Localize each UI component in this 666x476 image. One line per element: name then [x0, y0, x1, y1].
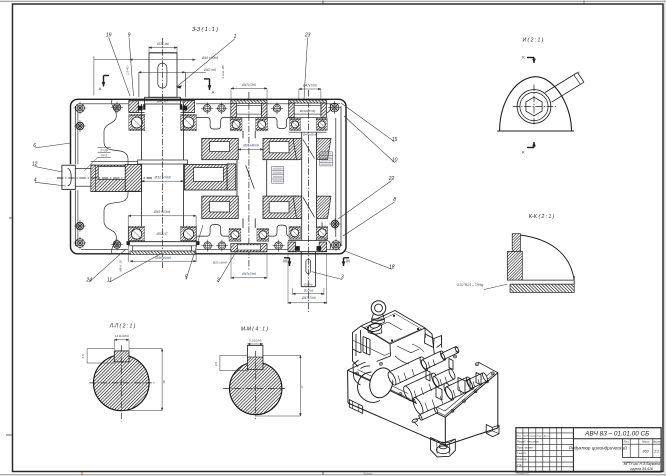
svg-text:И ( 2 : 1 ): И ( 2 : 1 ) — [523, 38, 544, 44]
svg-text:5: 5 — [185, 275, 188, 281]
svg-text:17: 17 — [300, 385, 304, 389]
svg-text:Ø47к7/п6: Ø47к7/п6 — [302, 83, 317, 87]
svg-text:Дата: Дата — [544, 436, 550, 438]
svg-text:Утв.: Утв. — [517, 463, 522, 467]
svg-text:Л-Л ( 2 : 1 ): Л-Л ( 2 : 1 ) — [109, 324, 136, 330]
svg-text:3 отв. M8: 3 отв. M8 — [221, 65, 225, 79]
svg-text:Ø28(E8/n6): Ø28(E8/n6) — [299, 109, 316, 113]
svg-text:3: 3 — [341, 275, 344, 281]
svg-text:Ø17к6: Ø17к6 — [303, 282, 313, 286]
svg-text:Т.контр.: Т.контр. — [517, 451, 527, 455]
svg-text:K: K — [522, 55, 525, 60]
svg-text:15: 15 — [392, 137, 398, 143]
svg-text:18: 18 — [389, 265, 395, 271]
svg-text:Ø42 m6: Ø42 m6 — [203, 68, 216, 72]
svg-text:З-З ( 1 : 1 ): З-З ( 1 : 1 ) — [192, 27, 218, 33]
svg-text:G1/2″В2/1 – 7H/6g: G1/2″В2/1 – 7H/6g — [457, 283, 484, 287]
svg-text:11: 11 — [107, 277, 112, 283]
svg-text:363: 363 — [642, 450, 649, 454]
svg-text:1:2: 1:2 — [654, 450, 659, 454]
svg-text:А: А — [212, 89, 215, 94]
svg-text:Ø47к7/п6: Ø47к7/п6 — [301, 296, 316, 300]
svg-text:K: K — [522, 150, 525, 155]
svg-text:Н.контр.: Н.контр. — [517, 457, 527, 461]
svg-text:8: 8 — [393, 197, 396, 203]
svg-text:Ø47к7/п6: Ø47к7/п6 — [241, 83, 256, 87]
svg-text:12: 12 — [32, 162, 38, 168]
svg-text:z=38: z=38 — [99, 148, 107, 152]
svg-text:23: 23 — [304, 33, 311, 39]
svg-text:14 D10/h9: 14 D10/h9 — [115, 334, 129, 338]
svg-text:22: 22 — [388, 176, 395, 182]
svg-text:МГТУ им. Н.Э.Баумана: МГТУ им. Н.Э.Баумана — [624, 462, 660, 466]
svg-text:4,5: 4,5 — [81, 354, 85, 359]
svg-text:24: 24 — [85, 277, 92, 283]
svg-text:19: 19 — [106, 33, 112, 39]
svg-text:Ø20 с6/п6: Ø20 с6/п6 — [212, 261, 227, 265]
svg-text:1,5×45°: 1,5×45° — [125, 64, 129, 75]
svg-text:Разраб. Антропов: Разраб. Антропов — [517, 440, 539, 444]
svg-text:Масса: Масса — [642, 441, 650, 444]
svg-text:Ø47тВ/п6: Ø47тВ/п6 — [302, 133, 318, 137]
svg-text:Ø32 H7/к6: Ø32 H7/к6 — [154, 176, 171, 180]
svg-text:Формат A1: Формат A1 — [516, 471, 530, 475]
svg-text:Ø47к7/п6: Ø47к7/п6 — [241, 272, 256, 276]
svg-text:Ø46 к6/п6: Ø46 к6/п6 — [154, 256, 171, 260]
svg-text:1: 1 — [234, 34, 237, 40]
svg-text:6: 6 — [33, 143, 36, 149]
svg-text:Ø26 H6/n6: Ø26 H6/n6 — [242, 143, 259, 147]
svg-text:Ø45 H7/n6: Ø45 H7/n6 — [153, 210, 171, 214]
svg-text:3,5: 3,5 — [214, 362, 218, 367]
svg-text:группа Э4-62Б: группа Э4-62Б — [630, 467, 654, 471]
svg-text:K-K ( 2 : 1 ): K-K ( 2 : 1 ) — [529, 214, 555, 220]
svg-text:10: 10 — [392, 158, 398, 164]
svg-text:Ø20 к6: Ø20 к6 — [303, 288, 314, 292]
svg-text:Ø35 м6: Ø35 м6 — [156, 42, 169, 46]
svg-text:Масшт.: Масшт. — [652, 441, 661, 444]
svg-text:m=2: m=2 — [101, 154, 108, 158]
svg-text:Пров. Фомин: Пров. Фомин — [517, 445, 533, 449]
svg-text:Лит.: Лит. — [622, 441, 629, 444]
svg-text:M: M — [346, 259, 350, 264]
svg-text:M: M — [283, 259, 287, 264]
svg-text:38: 38 — [162, 380, 166, 384]
svg-text:Ø46 H7/n6: Ø46 H7/n6 — [201, 56, 219, 60]
svg-text:9: 9 — [128, 33, 131, 39]
svg-text:Ø46 H7: Ø46 H7 — [156, 100, 168, 104]
svg-text:4: 4 — [34, 178, 37, 184]
svg-text:Ø52 H7: Ø52 H7 — [156, 232, 168, 236]
svg-text:ABЧ 83 – 01.01.00 CБ: ABЧ 83 – 01.01.00 CБ — [584, 431, 649, 438]
svg-text:2: 2 — [216, 277, 220, 283]
svg-text:5 D10/h9: 5 D10/h9 — [249, 338, 262, 342]
svg-text:M8×1-19: M8×1-19 — [118, 260, 122, 272]
svg-text:Формат: Формат — [363, 471, 373, 475]
svg-text:Изм.: Изм. — [517, 436, 522, 438]
svg-text:Редуктор цилиндрический: Редуктор цилиндрический — [569, 445, 627, 451]
svg-text:Подп.: Подп. — [537, 436, 543, 438]
svg-text:А: А — [99, 86, 102, 91]
svg-text:M-M ( 4 : 1 ): M-M ( 4 : 1 ) — [241, 327, 269, 333]
